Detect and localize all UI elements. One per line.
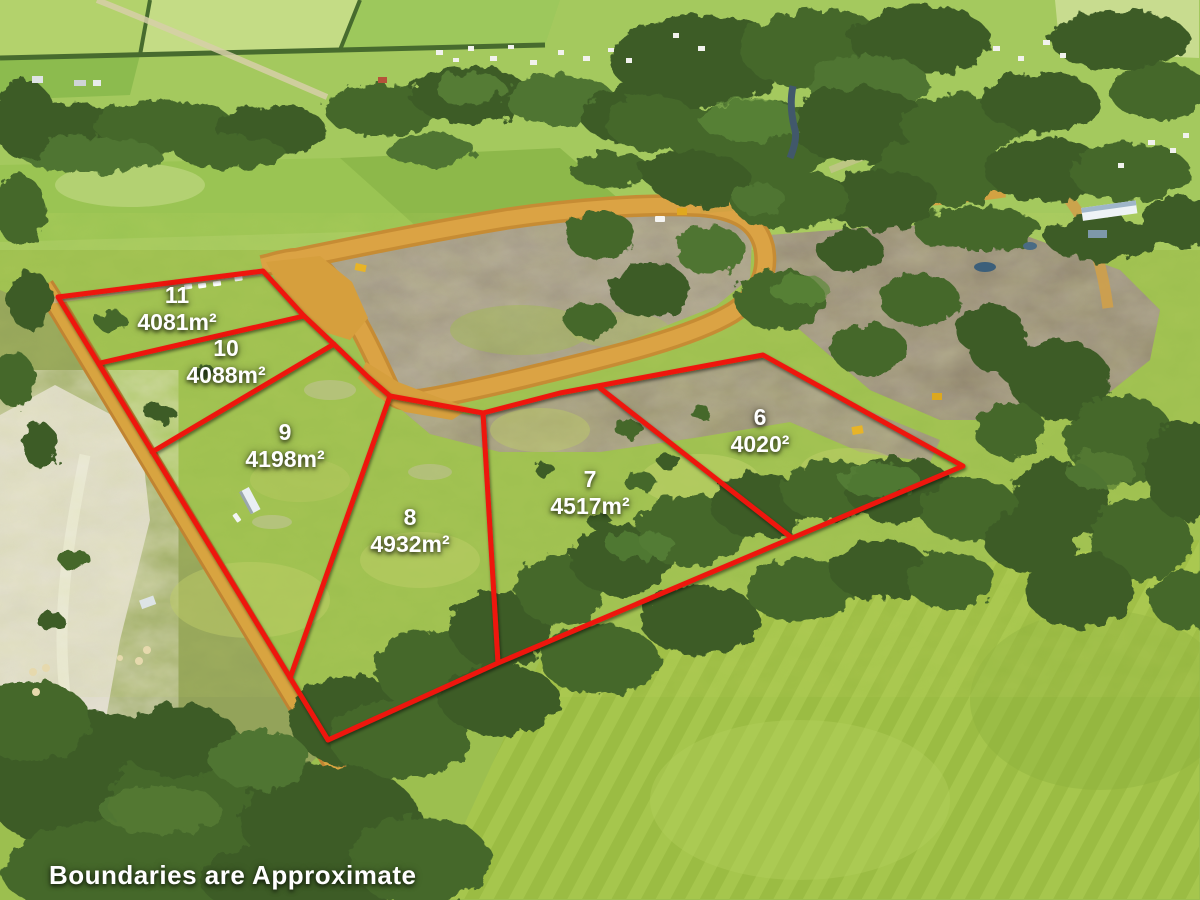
lot-label-9: 9 4198m² <box>245 419 324 473</box>
shed <box>74 80 86 86</box>
pond <box>1023 242 1037 250</box>
pond <box>974 262 996 272</box>
disclaimer-text: Boundaries are Approximate <box>49 860 416 891</box>
lot-area: 4088m² <box>186 362 265 389</box>
white-truck <box>655 216 665 222</box>
lot-label-8: 8 4932m² <box>370 504 449 558</box>
shed <box>32 76 43 83</box>
river <box>790 86 796 158</box>
lot-label-7: 7 4517m² <box>550 466 629 520</box>
aerial-scene <box>0 0 1200 900</box>
lot-number: 11 <box>137 282 216 309</box>
lot-area: 4932m² <box>370 531 449 558</box>
lot-area: 4198m² <box>245 446 324 473</box>
lot-number: 6 <box>731 404 790 431</box>
lot-number: 9 <box>245 419 324 446</box>
lot-label-6: 6 4020² <box>731 404 790 458</box>
lot-area: 4020² <box>731 431 790 458</box>
aerial-photo: 11 4081m² 10 4088m² 9 4198m² 8 4932m² 7 … <box>0 0 1200 900</box>
lot-area: 4081m² <box>137 309 216 336</box>
lot-number: 10 <box>186 335 265 362</box>
blue-shed <box>1088 230 1107 238</box>
shed <box>93 80 101 86</box>
lot-number: 7 <box>550 466 629 493</box>
red-roof-shed <box>378 77 387 83</box>
lot-number: 8 <box>370 504 449 531</box>
lot-label-10: 10 4088m² <box>186 335 265 389</box>
lot-area: 4517m² <box>550 493 629 520</box>
lot-label-11: 11 4081m² <box>137 282 216 336</box>
